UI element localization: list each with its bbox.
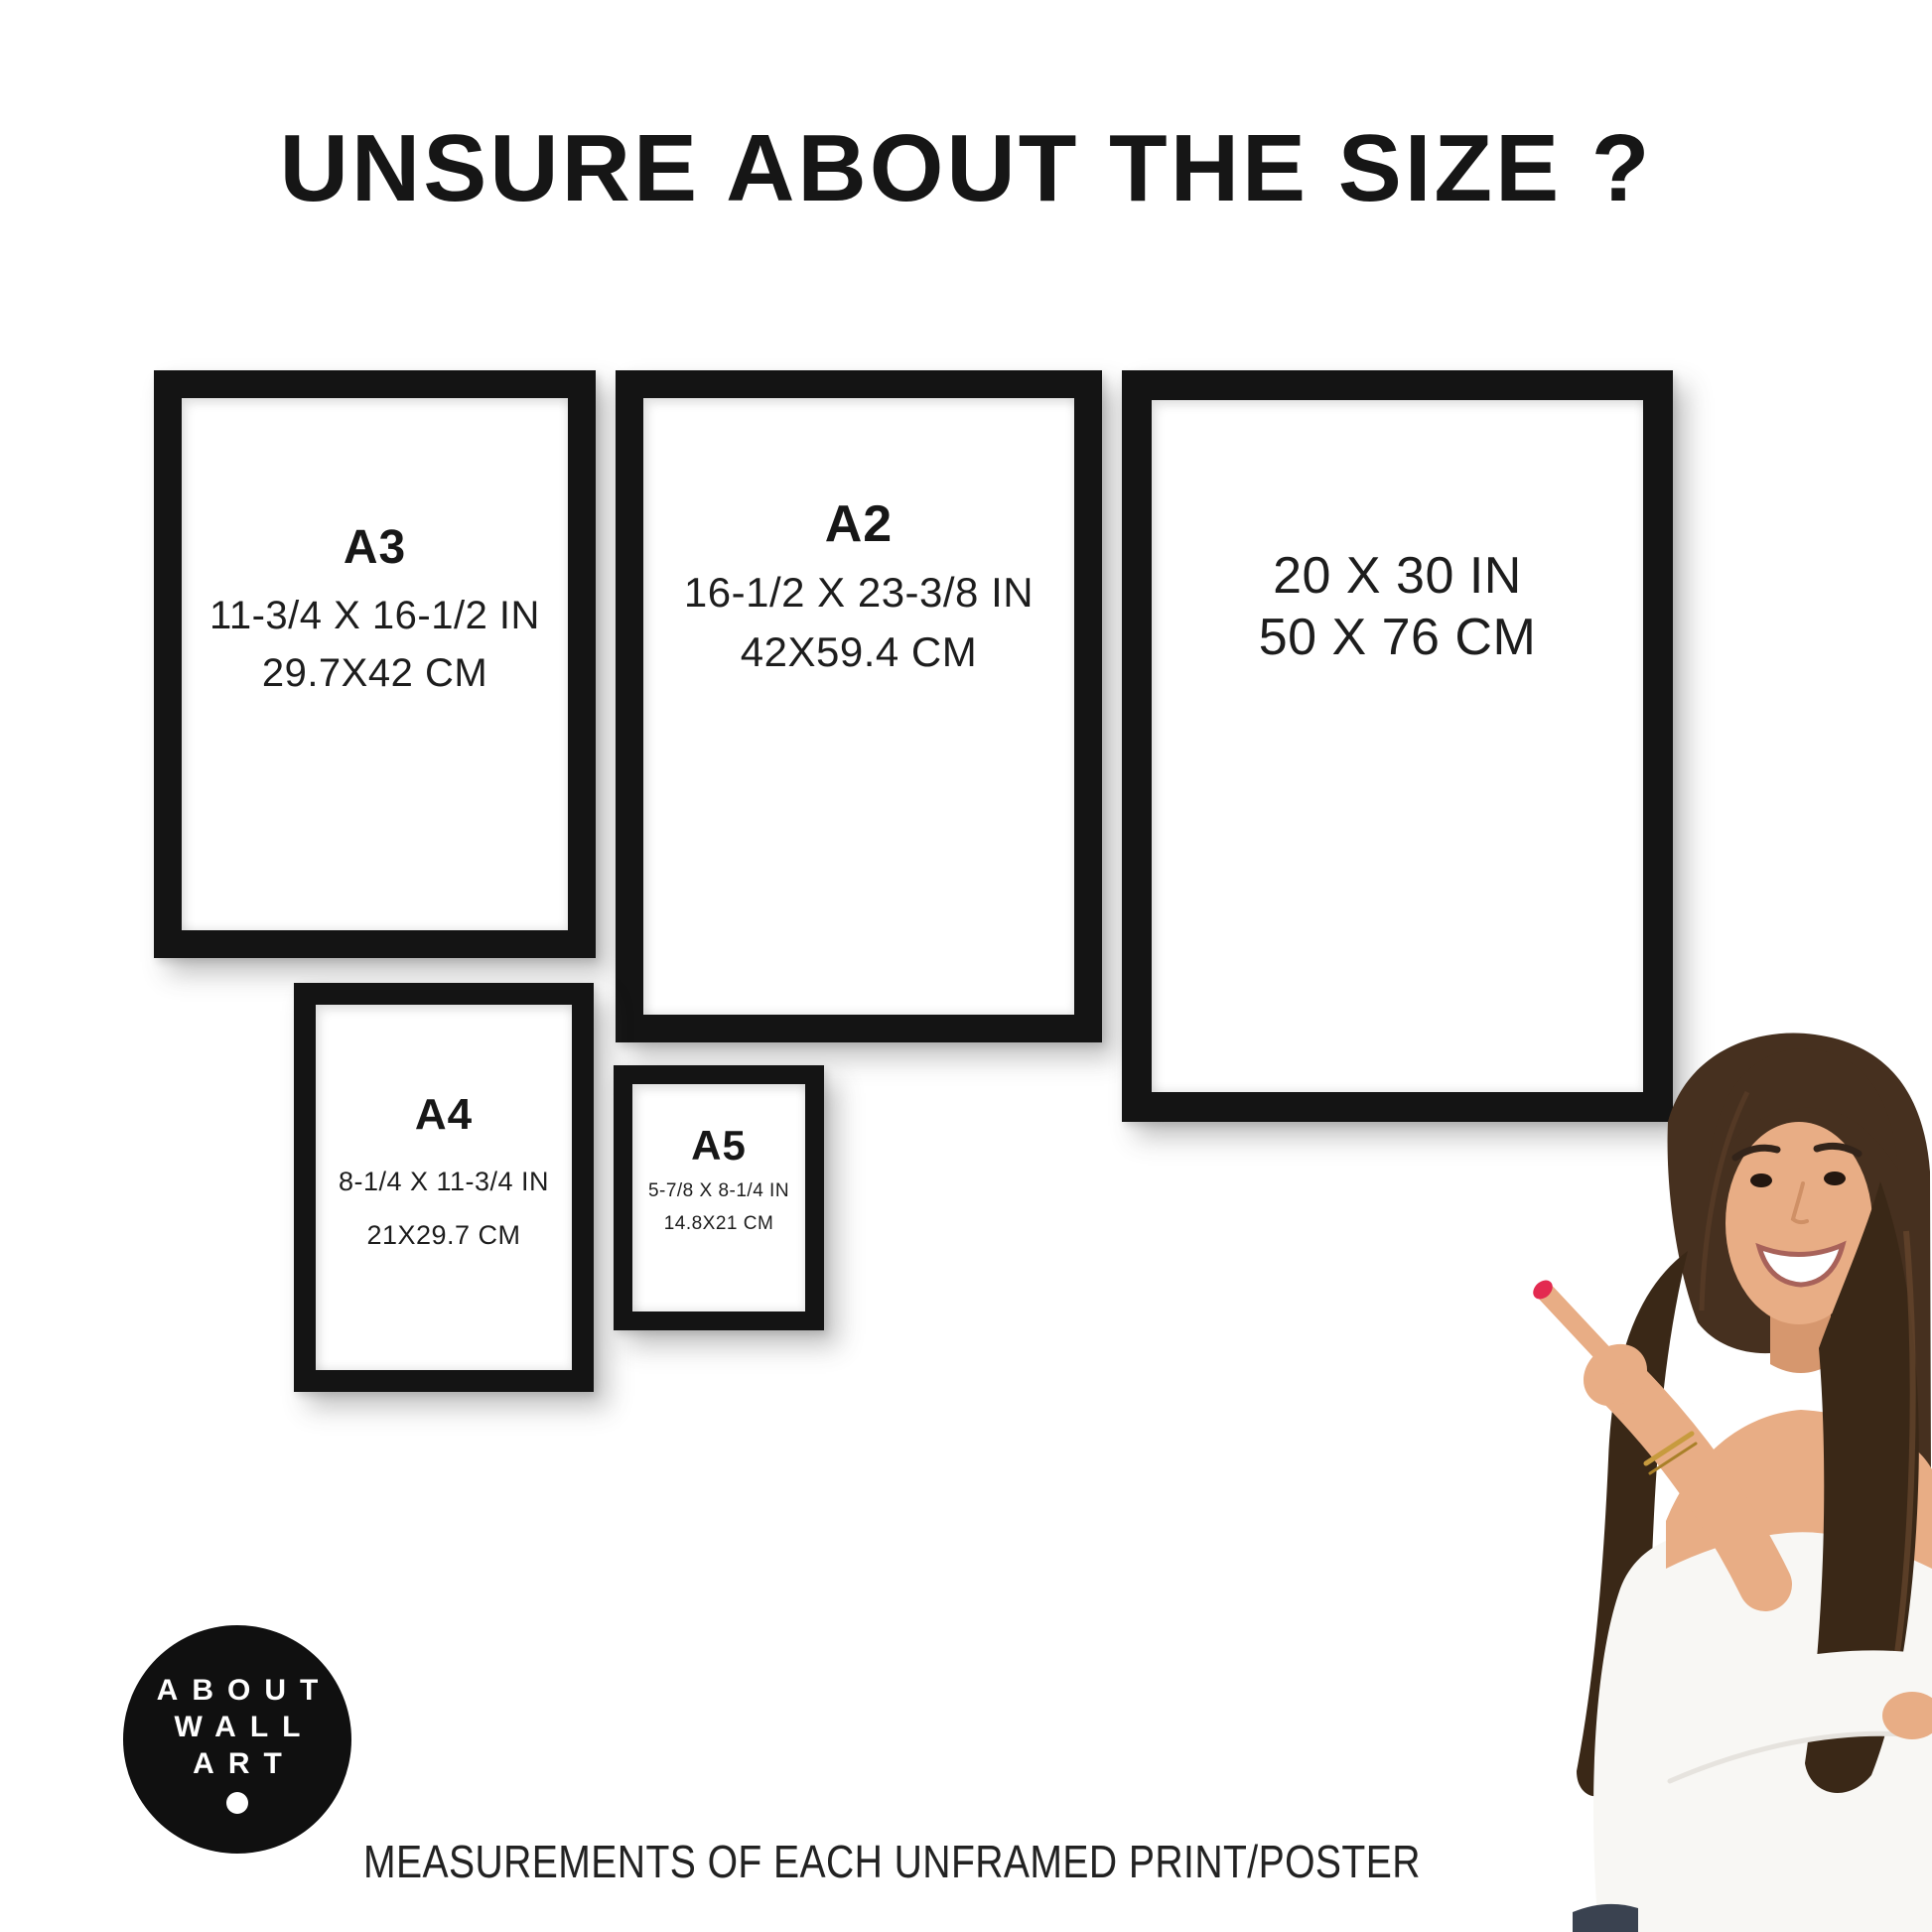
jeans bbox=[1573, 1904, 1638, 1932]
frame-a5-mat: A5 5-7/8 X 8-1/4 IN 14.8X21 CM bbox=[632, 1084, 805, 1311]
size-inches: 16-1/2 X 23-3/8 IN bbox=[684, 563, 1034, 622]
frame-a4: A4 8-1/4 X 11-3/4 IN 21X29.7 CM bbox=[294, 983, 594, 1392]
size-cm: 14.8X21 CM bbox=[664, 1207, 774, 1240]
frame-20x30-mat: 20 X 30 IN 50 X 76 CM bbox=[1152, 400, 1643, 1092]
page-title: UNSURE ABOUT THE SIZE ? bbox=[0, 121, 1932, 216]
right-eye bbox=[1824, 1172, 1846, 1185]
frame-a2: A2 16-1/2 X 23-3/8 IN 42X59.4 CM bbox=[616, 370, 1102, 1042]
logo-dot-icon bbox=[226, 1792, 248, 1814]
frame-a2-mat: A2 16-1/2 X 23-3/8 IN 42X59.4 CM bbox=[643, 398, 1074, 1015]
size-label: A2 bbox=[825, 495, 893, 553]
size-inches: 20 X 30 IN bbox=[1273, 545, 1522, 607]
size-inches: 11-3/4 X 16-1/2 IN bbox=[209, 587, 540, 644]
size-label: A5 bbox=[691, 1122, 747, 1169]
size-label: A3 bbox=[344, 521, 406, 575]
size-cm: 50 X 76 CM bbox=[1259, 607, 1537, 668]
size-guide-poster: UNSURE ABOUT THE SIZE ? A3 11-3/4 X 16-1… bbox=[0, 0, 1932, 1932]
caption-text: MEASUREMENTS OF EACH UNFRAMED PRINT/POST… bbox=[363, 1835, 1421, 1888]
frame-a3: A3 11-3/4 X 16-1/2 IN 29.7X42 CM bbox=[154, 370, 596, 958]
frame-a4-mat: A4 8-1/4 X 11-3/4 IN 21X29.7 CM bbox=[316, 1005, 572, 1370]
size-cm: 42X59.4 CM bbox=[741, 622, 977, 682]
index-finger bbox=[1547, 1294, 1618, 1370]
logo-text-wall: WALL bbox=[175, 1709, 315, 1745]
size-label: A4 bbox=[415, 1090, 473, 1139]
size-cm: 29.7X42 CM bbox=[262, 644, 487, 702]
frame-a5: A5 5-7/8 X 8-1/4 IN 14.8X21 CM bbox=[614, 1065, 824, 1330]
woman-photo bbox=[1370, 1033, 1932, 1932]
left-eye bbox=[1750, 1173, 1772, 1187]
logo-text-about: ABOUT bbox=[157, 1672, 333, 1709]
size-inches: 8-1/4 X 11-3/4 IN bbox=[339, 1155, 549, 1208]
frame-20x30: 20 X 30 IN 50 X 76 CM bbox=[1122, 370, 1673, 1122]
logo-text-art: ART bbox=[193, 1745, 296, 1782]
size-inches: 5-7/8 X 8-1/4 IN bbox=[648, 1174, 789, 1207]
brand-logo: ABOUT WALL ART bbox=[123, 1625, 351, 1854]
size-cm: 21X29.7 CM bbox=[366, 1208, 520, 1262]
frame-a3-mat: A3 11-3/4 X 16-1/2 IN 29.7X42 CM bbox=[182, 398, 568, 930]
